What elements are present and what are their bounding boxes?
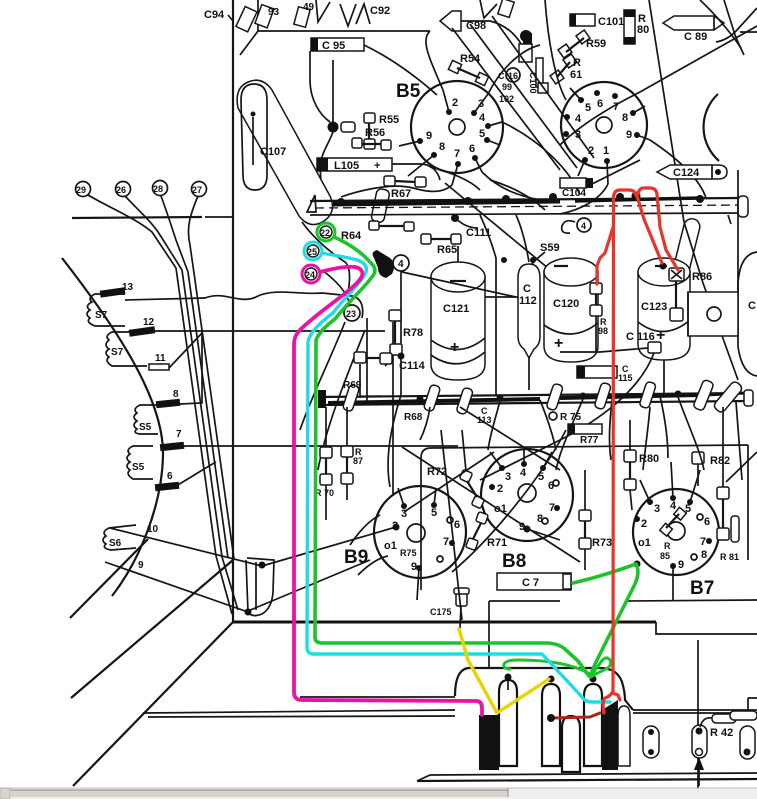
svg-text:C123: C123 — [641, 301, 667, 313]
svg-text:5: 5 — [585, 102, 591, 114]
svg-text:85: 85 — [660, 551, 670, 561]
svg-text:112: 112 — [519, 295, 537, 307]
svg-text:9: 9 — [138, 560, 144, 571]
svg-text:102: 102 — [499, 94, 514, 104]
svg-text:R59: R59 — [586, 38, 606, 50]
svg-text:R82: R82 — [710, 455, 730, 467]
svg-text:2: 2 — [641, 518, 647, 530]
svg-text:R72: R72 — [427, 466, 447, 478]
svg-text:C124: C124 — [673, 167, 700, 179]
svg-text:61: 61 — [570, 69, 582, 81]
svg-text:R68: R68 — [404, 412, 423, 423]
svg-text:6: 6 — [704, 516, 710, 528]
svg-text:C121: C121 — [443, 303, 469, 315]
svg-text:C92: C92 — [370, 5, 390, 17]
svg-text:9: 9 — [426, 130, 432, 142]
svg-text:7: 7 — [613, 101, 619, 113]
svg-text:4: 4 — [479, 112, 486, 124]
svg-text:L105: L105 — [334, 160, 359, 172]
svg-text:7: 7 — [454, 148, 460, 160]
svg-text:R: R — [664, 541, 671, 551]
svg-text:7: 7 — [700, 536, 706, 548]
svg-text:5: 5 — [431, 507, 437, 519]
svg-text:C175: C175 — [430, 607, 452, 617]
svg-text:C114: C114 — [399, 360, 426, 372]
svg-text:10: 10 — [147, 524, 159, 535]
svg-text:8: 8 — [439, 141, 445, 153]
svg-text:R77: R77 — [580, 435, 599, 446]
svg-text:16: 16 — [508, 71, 518, 81]
svg-text:C: C — [748, 300, 756, 312]
svg-text:2: 2 — [452, 97, 458, 109]
svg-text:28: 28 — [153, 184, 163, 194]
svg-text:3: 3 — [505, 471, 511, 483]
svg-text:R73: R73 — [592, 537, 612, 549]
svg-text:115: 115 — [618, 373, 633, 383]
svg-text:R69: R69 — [343, 380, 362, 391]
svg-text:1: 1 — [603, 145, 609, 157]
svg-text:87: 87 — [353, 456, 363, 466]
svg-text:49: 49 — [303, 2, 315, 13]
svg-text:B5: B5 — [396, 81, 421, 102]
svg-text:S59: S59 — [540, 242, 560, 254]
svg-text:80: 80 — [637, 24, 649, 36]
svg-text:R56: R56 — [365, 127, 385, 139]
svg-text:R67: R67 — [391, 188, 411, 200]
svg-text:o1: o1 — [384, 540, 397, 552]
svg-text:C120: C120 — [553, 298, 579, 310]
svg-text:7: 7 — [176, 429, 182, 440]
svg-text:3: 3 — [654, 503, 660, 515]
svg-text:4: 4 — [581, 221, 586, 231]
svg-text:R78: R78 — [403, 327, 423, 339]
svg-text:R71: R71 — [487, 537, 507, 549]
svg-text:B9: B9 — [344, 547, 368, 568]
svg-text:27: 27 — [192, 185, 202, 195]
svg-text:12: 12 — [143, 317, 155, 328]
svg-text:4: 4 — [520, 467, 527, 479]
svg-text:R 42: R 42 — [710, 727, 733, 739]
svg-text:R 70: R 70 — [315, 488, 334, 498]
svg-text:R80: R80 — [639, 453, 659, 465]
svg-text:6: 6 — [454, 519, 460, 531]
svg-text:C 116: C 116 — [626, 331, 655, 343]
svg-text:98: 98 — [598, 326, 608, 336]
svg-text:25: 25 — [307, 247, 317, 257]
svg-text:22: 22 — [320, 228, 330, 238]
svg-text:R54: R54 — [460, 53, 481, 65]
svg-text:S7: S7 — [111, 347, 124, 358]
svg-text:23: 23 — [346, 309, 356, 319]
svg-text:8: 8 — [622, 112, 628, 124]
svg-text:S7: S7 — [95, 310, 108, 321]
svg-text:C 95: C 95 — [322, 40, 345, 52]
svg-text:6: 6 — [597, 98, 603, 110]
svg-text:C 7: C 7 — [522, 577, 539, 589]
svg-text:99: 99 — [502, 82, 512, 92]
svg-text:R: R — [573, 57, 581, 69]
svg-text:S5: S5 — [132, 462, 145, 473]
svg-text:C104: C104 — [562, 188, 586, 199]
svg-text:5: 5 — [479, 128, 485, 140]
svg-text:2: 2 — [497, 483, 503, 495]
svg-text:4: 4 — [670, 500, 677, 512]
svg-text:11: 11 — [155, 353, 166, 364]
svg-text:C101: C101 — [598, 16, 624, 28]
svg-text:3: 3 — [575, 129, 581, 141]
svg-text:9: 9 — [626, 129, 632, 141]
svg-text:S5: S5 — [139, 422, 152, 433]
svg-text:26: 26 — [116, 185, 126, 195]
svg-text:C100: C100 — [528, 72, 538, 94]
svg-text:4: 4 — [575, 113, 582, 125]
svg-text:8: 8 — [173, 389, 179, 400]
svg-text:13: 13 — [122, 282, 134, 293]
svg-text:C: C — [523, 283, 531, 295]
svg-text:6: 6 — [469, 143, 475, 155]
svg-text:R86: R86 — [692, 271, 712, 283]
svg-text:+: + — [374, 160, 380, 172]
svg-text:R75: R75 — [400, 548, 417, 558]
svg-text:S6: S6 — [109, 538, 122, 549]
svg-text:+: + — [554, 335, 563, 352]
svg-text:C107: C107 — [260, 146, 286, 158]
svg-text:8: 8 — [701, 549, 707, 561]
svg-text:4: 4 — [398, 259, 404, 270]
svg-text:B8: B8 — [502, 551, 526, 572]
svg-text:2: 2 — [588, 145, 594, 157]
svg-text:24: 24 — [305, 270, 315, 280]
svg-text:7: 7 — [443, 536, 449, 548]
svg-text:93: 93 — [268, 7, 280, 18]
svg-text:29: 29 — [76, 185, 86, 195]
svg-text:C 89: C 89 — [684, 31, 707, 43]
svg-text:R65: R65 — [437, 244, 457, 256]
svg-text:R 81: R 81 — [720, 552, 739, 562]
svg-text:6: 6 — [167, 471, 173, 482]
svg-text:R 75: R 75 — [560, 412, 582, 423]
svg-text:o1: o1 — [638, 537, 651, 549]
svg-text:C94: C94 — [204, 9, 225, 21]
svg-text:+: + — [450, 339, 459, 356]
svg-text:R55: R55 — [379, 114, 399, 126]
svg-text:9: 9 — [678, 559, 684, 571]
svg-text:B7: B7 — [690, 578, 714, 599]
